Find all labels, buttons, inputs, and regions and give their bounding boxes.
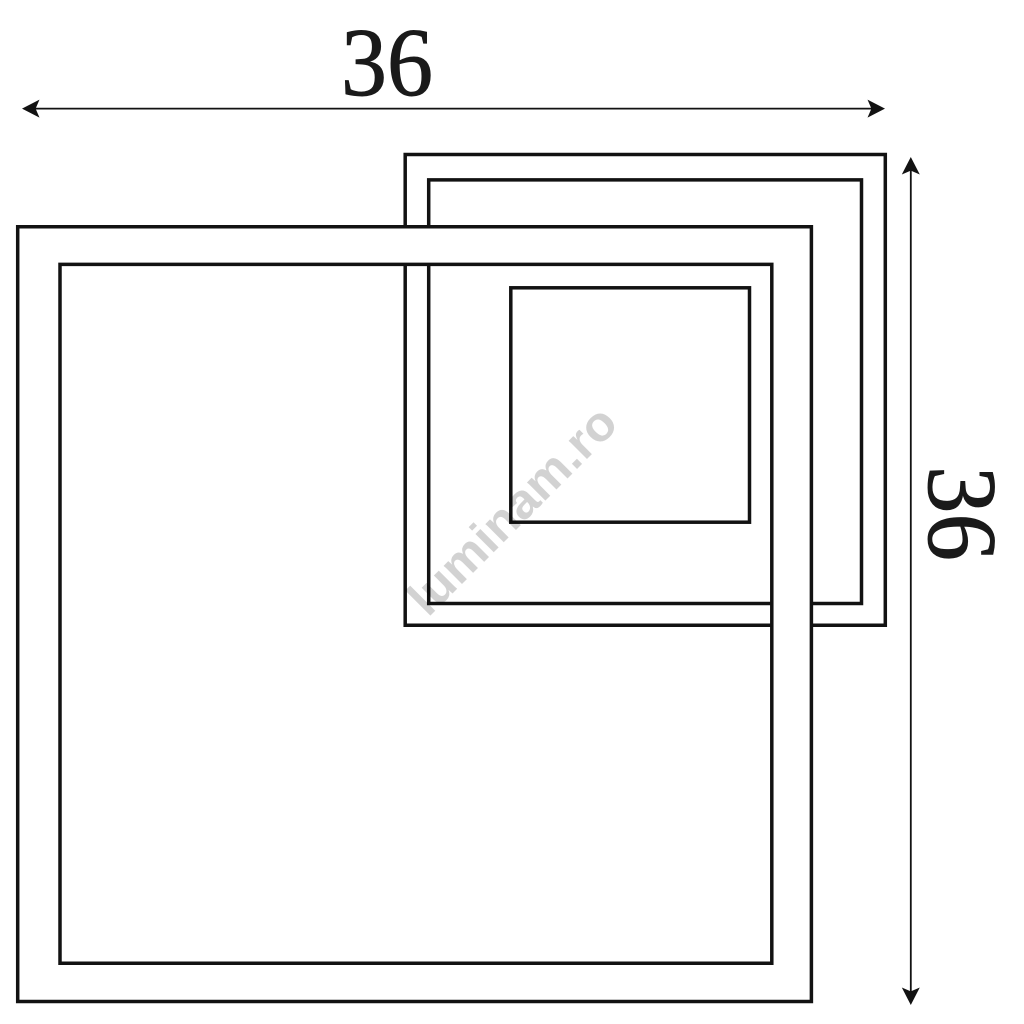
svg-text:36: 36 <box>907 466 1016 561</box>
svg-text:36: 36 <box>341 9 433 116</box>
svg-text:luminam.ro: luminam.ro <box>397 395 628 626</box>
